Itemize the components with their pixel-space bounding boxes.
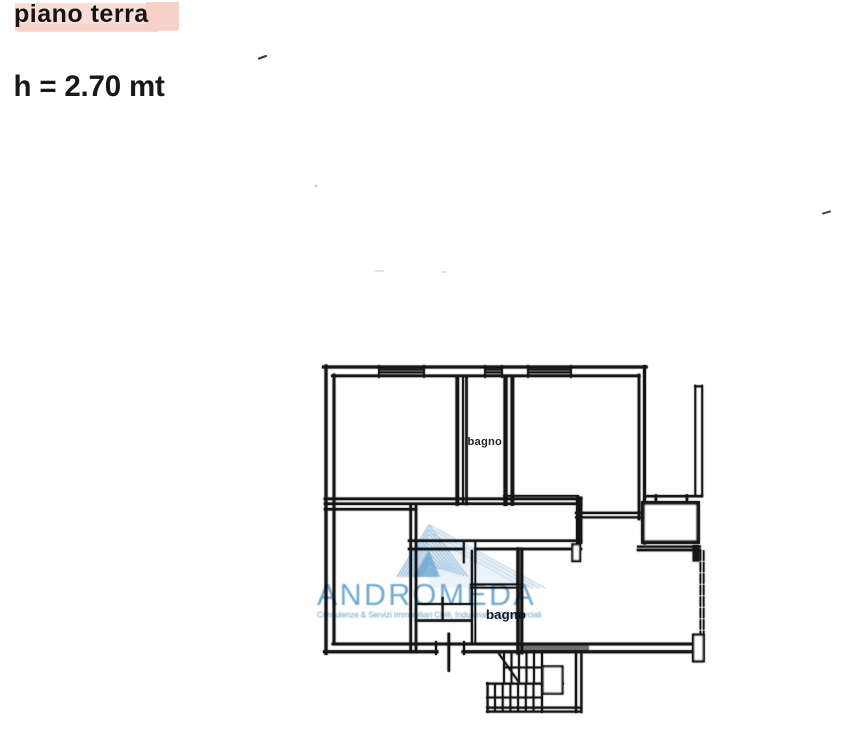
svg-text:piano terra: piano terra — [14, 0, 149, 28]
svg-text:bagno: bagno — [486, 607, 526, 622]
svg-text:h = 2.70 mt: h = 2.70 mt — [14, 70, 165, 103]
svg-text:bagno: bagno — [468, 436, 503, 448]
